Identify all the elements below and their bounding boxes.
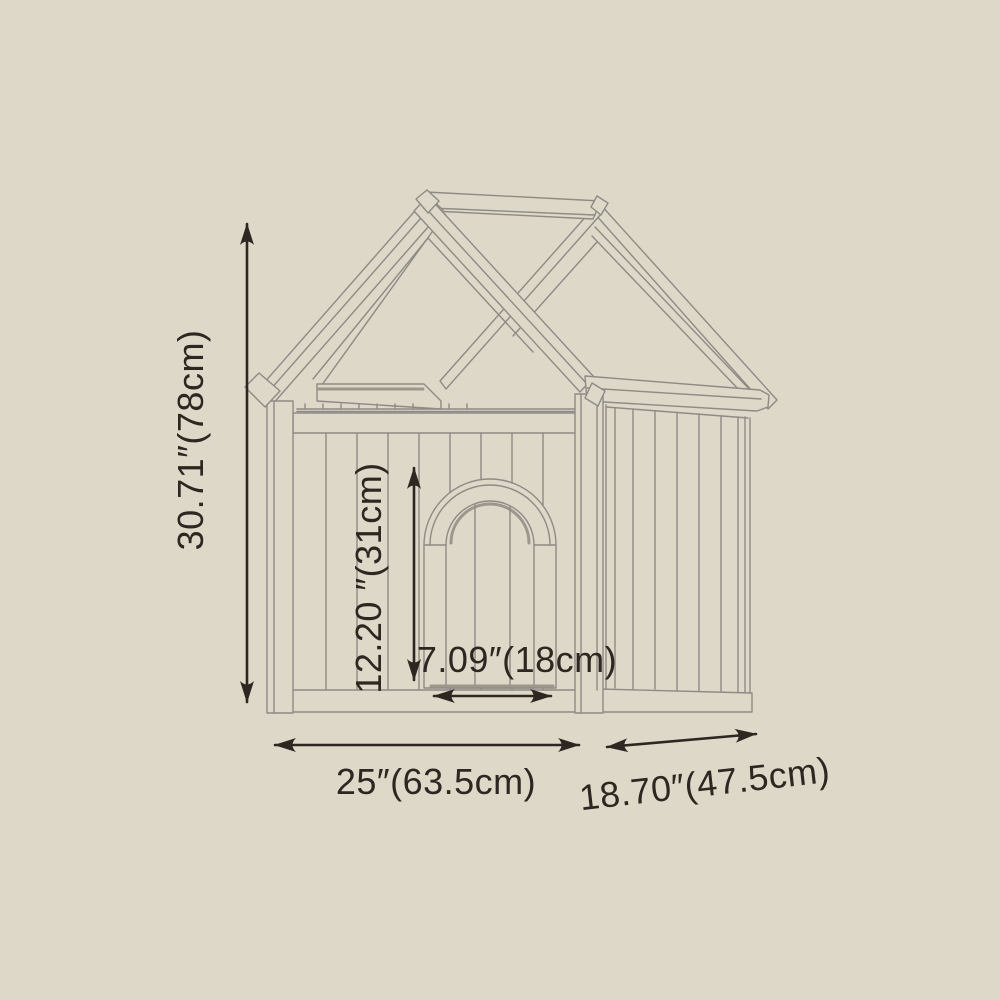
overall-height-label: 30.71″(78cm) bbox=[170, 330, 211, 551]
door-height-label: 12.20 ″(31cm) bbox=[348, 462, 389, 693]
overall-depth-dimension: 18.70″(47.5cm) bbox=[577, 734, 832, 818]
dimension-diagram-page: 30.71″(78cm) 12.20 ″(31cm) 7.09″(18cm) 2… bbox=[0, 0, 1000, 1000]
right-side-wall bbox=[599, 405, 752, 712]
overall-width-label: 25″(63.5cm) bbox=[336, 761, 536, 802]
door-height-dimension: 12.20 ″(31cm) bbox=[348, 462, 414, 693]
overall-height-dimension: 30.71″(78cm) bbox=[170, 224, 247, 702]
overall-depth-label: 18.70″(47.5cm) bbox=[577, 749, 832, 818]
ridge-beam bbox=[426, 192, 608, 219]
overall-width-dimension: 25″(63.5cm) bbox=[275, 745, 579, 802]
door-width-label: 7.09″(18cm) bbox=[417, 639, 617, 680]
dog-house-drawing bbox=[245, 190, 777, 713]
overall-depth-arrow bbox=[607, 734, 756, 747]
dimension-diagram-svg: 30.71″(78cm) 12.20 ″(31cm) 7.09″(18cm) 2… bbox=[0, 0, 1000, 1000]
